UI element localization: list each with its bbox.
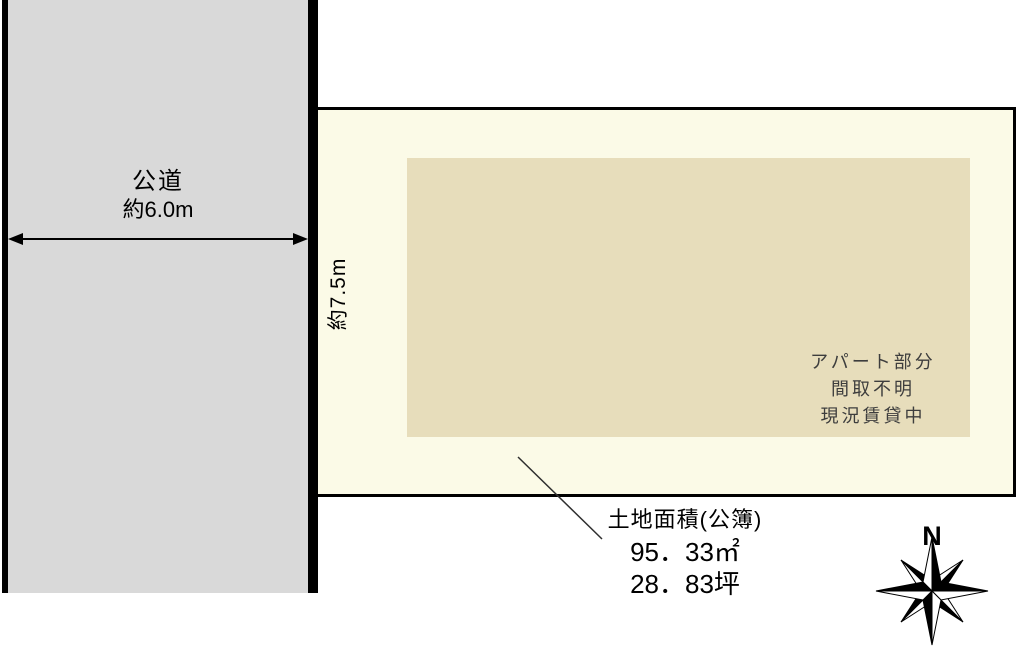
road-width-arrow-icon [8, 230, 308, 248]
frontage-dimension-label: 約7.5m [322, 258, 352, 331]
land-area-title: 土地面積(公簿) [580, 504, 790, 536]
land-area-tsubo: 28．83坪 [580, 568, 790, 600]
apartment-note-line2: 間取不明 [763, 376, 983, 403]
compass-rose-icon: N [870, 512, 994, 648]
apartment-note-line3: 現況賃貸中 [763, 403, 983, 430]
land-area-sqm: 95．33㎡ [580, 536, 790, 568]
road-area [2, 0, 318, 593]
road-width-label: 約6.0m [8, 196, 308, 224]
road-label: 公道 約6.0m [8, 168, 308, 224]
land-area-block: 土地面積(公簿) 95．33㎡ 28．83坪 [580, 504, 790, 600]
road-name: 公道 [8, 168, 308, 196]
apartment-note: アパート部分 間取不明 現況賃貸中 [763, 349, 983, 430]
apartment-note-line1: アパート部分 [763, 349, 983, 376]
